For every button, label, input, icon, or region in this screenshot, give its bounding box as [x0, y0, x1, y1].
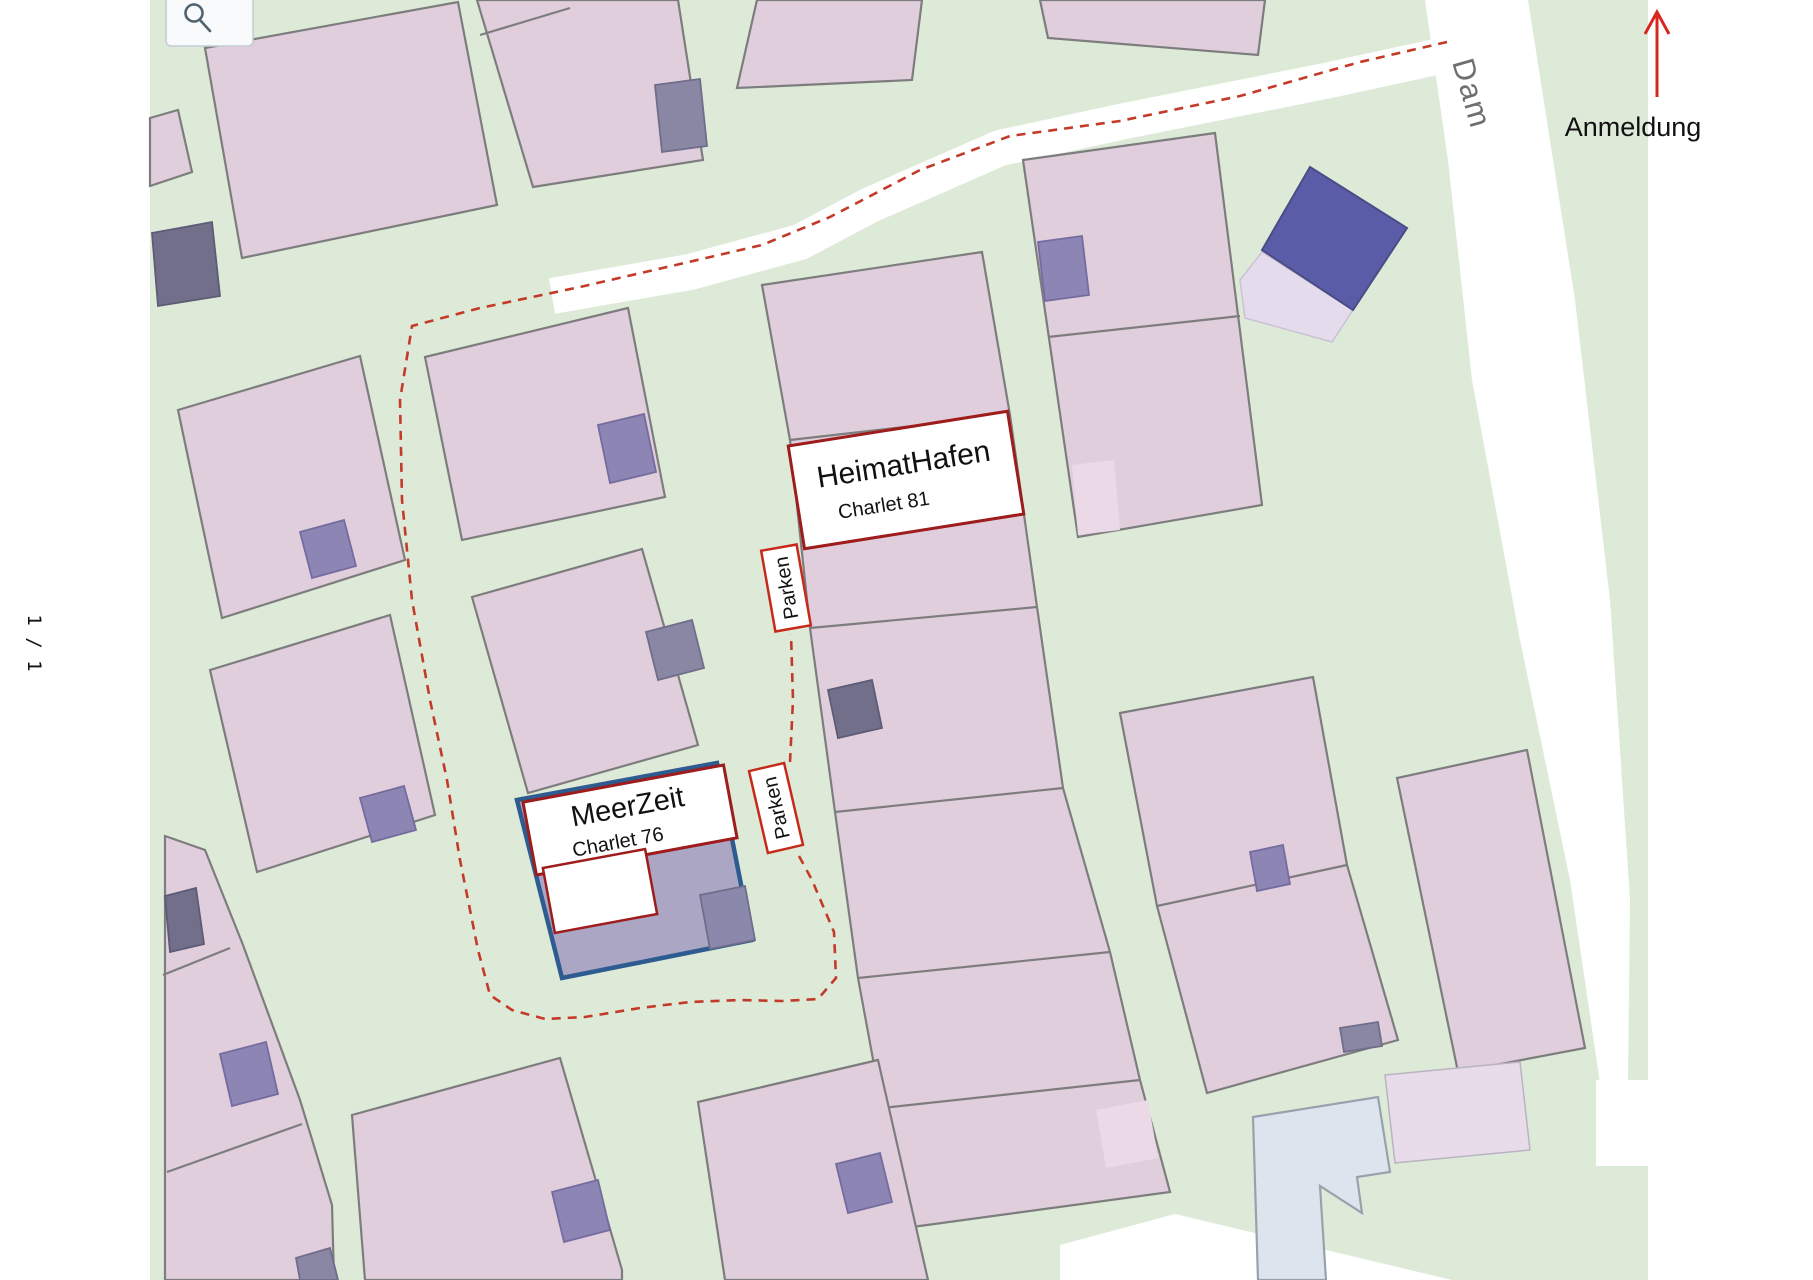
shed	[152, 222, 220, 306]
shed	[655, 79, 707, 152]
parcel	[737, 0, 922, 88]
site-plan-viewer: HeimatHafen Charlet 81 MeerZeit Charlet …	[0, 0, 1813, 1280]
shed	[700, 886, 755, 949]
shed	[1340, 1022, 1382, 1052]
shed	[1250, 845, 1290, 891]
search-button[interactable]	[166, 0, 253, 46]
anmeldung-text: Anmeldung	[1565, 112, 1702, 142]
page-indicator: 1 / 1	[23, 614, 45, 671]
site-plan-map: HeimatHafen Charlet 81 MeerZeit Charlet …	[0, 0, 1813, 1280]
shed	[1038, 236, 1089, 301]
shed	[828, 680, 882, 738]
shed	[165, 888, 204, 952]
street-notch	[1596, 1080, 1652, 1166]
